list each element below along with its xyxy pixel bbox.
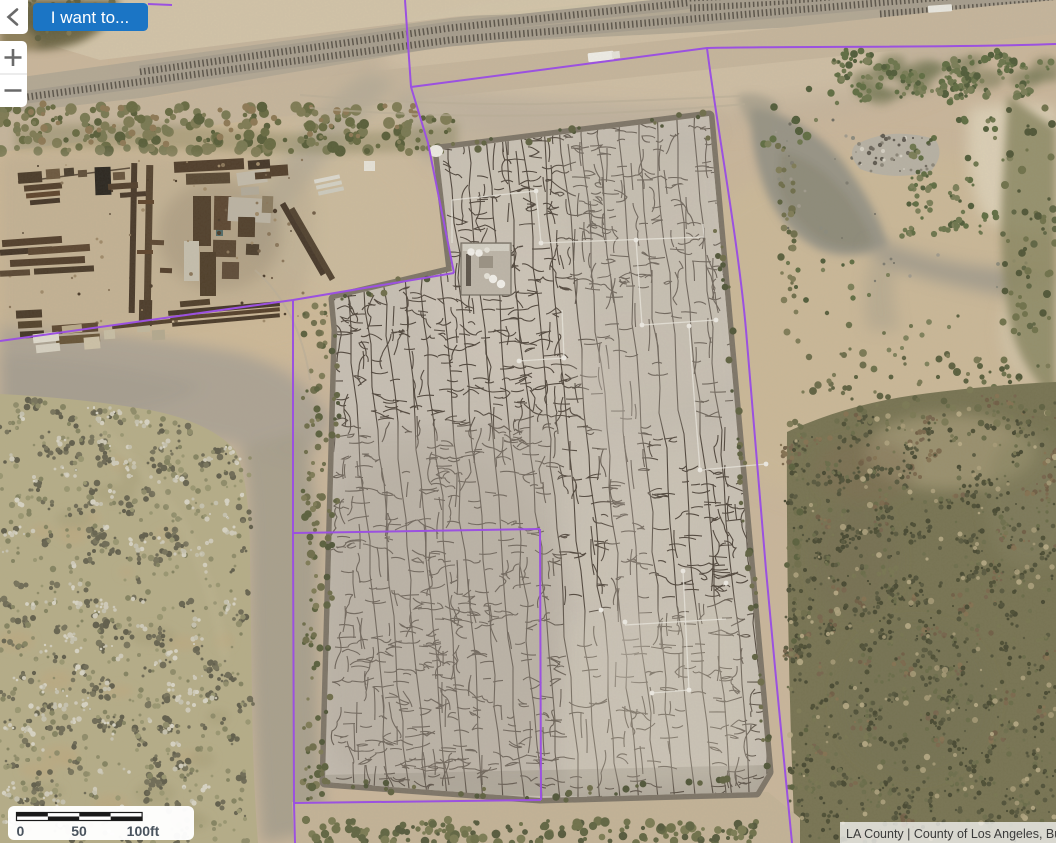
svg-text:I want to...: I want to... [51,8,129,27]
svg-text:50: 50 [71,823,87,839]
svg-text:LA County | County of Los Ange: LA County | County of Los Angeles, Bu [846,827,1056,841]
svg-text:0: 0 [17,823,25,839]
svg-text:100ft: 100ft [127,823,160,839]
